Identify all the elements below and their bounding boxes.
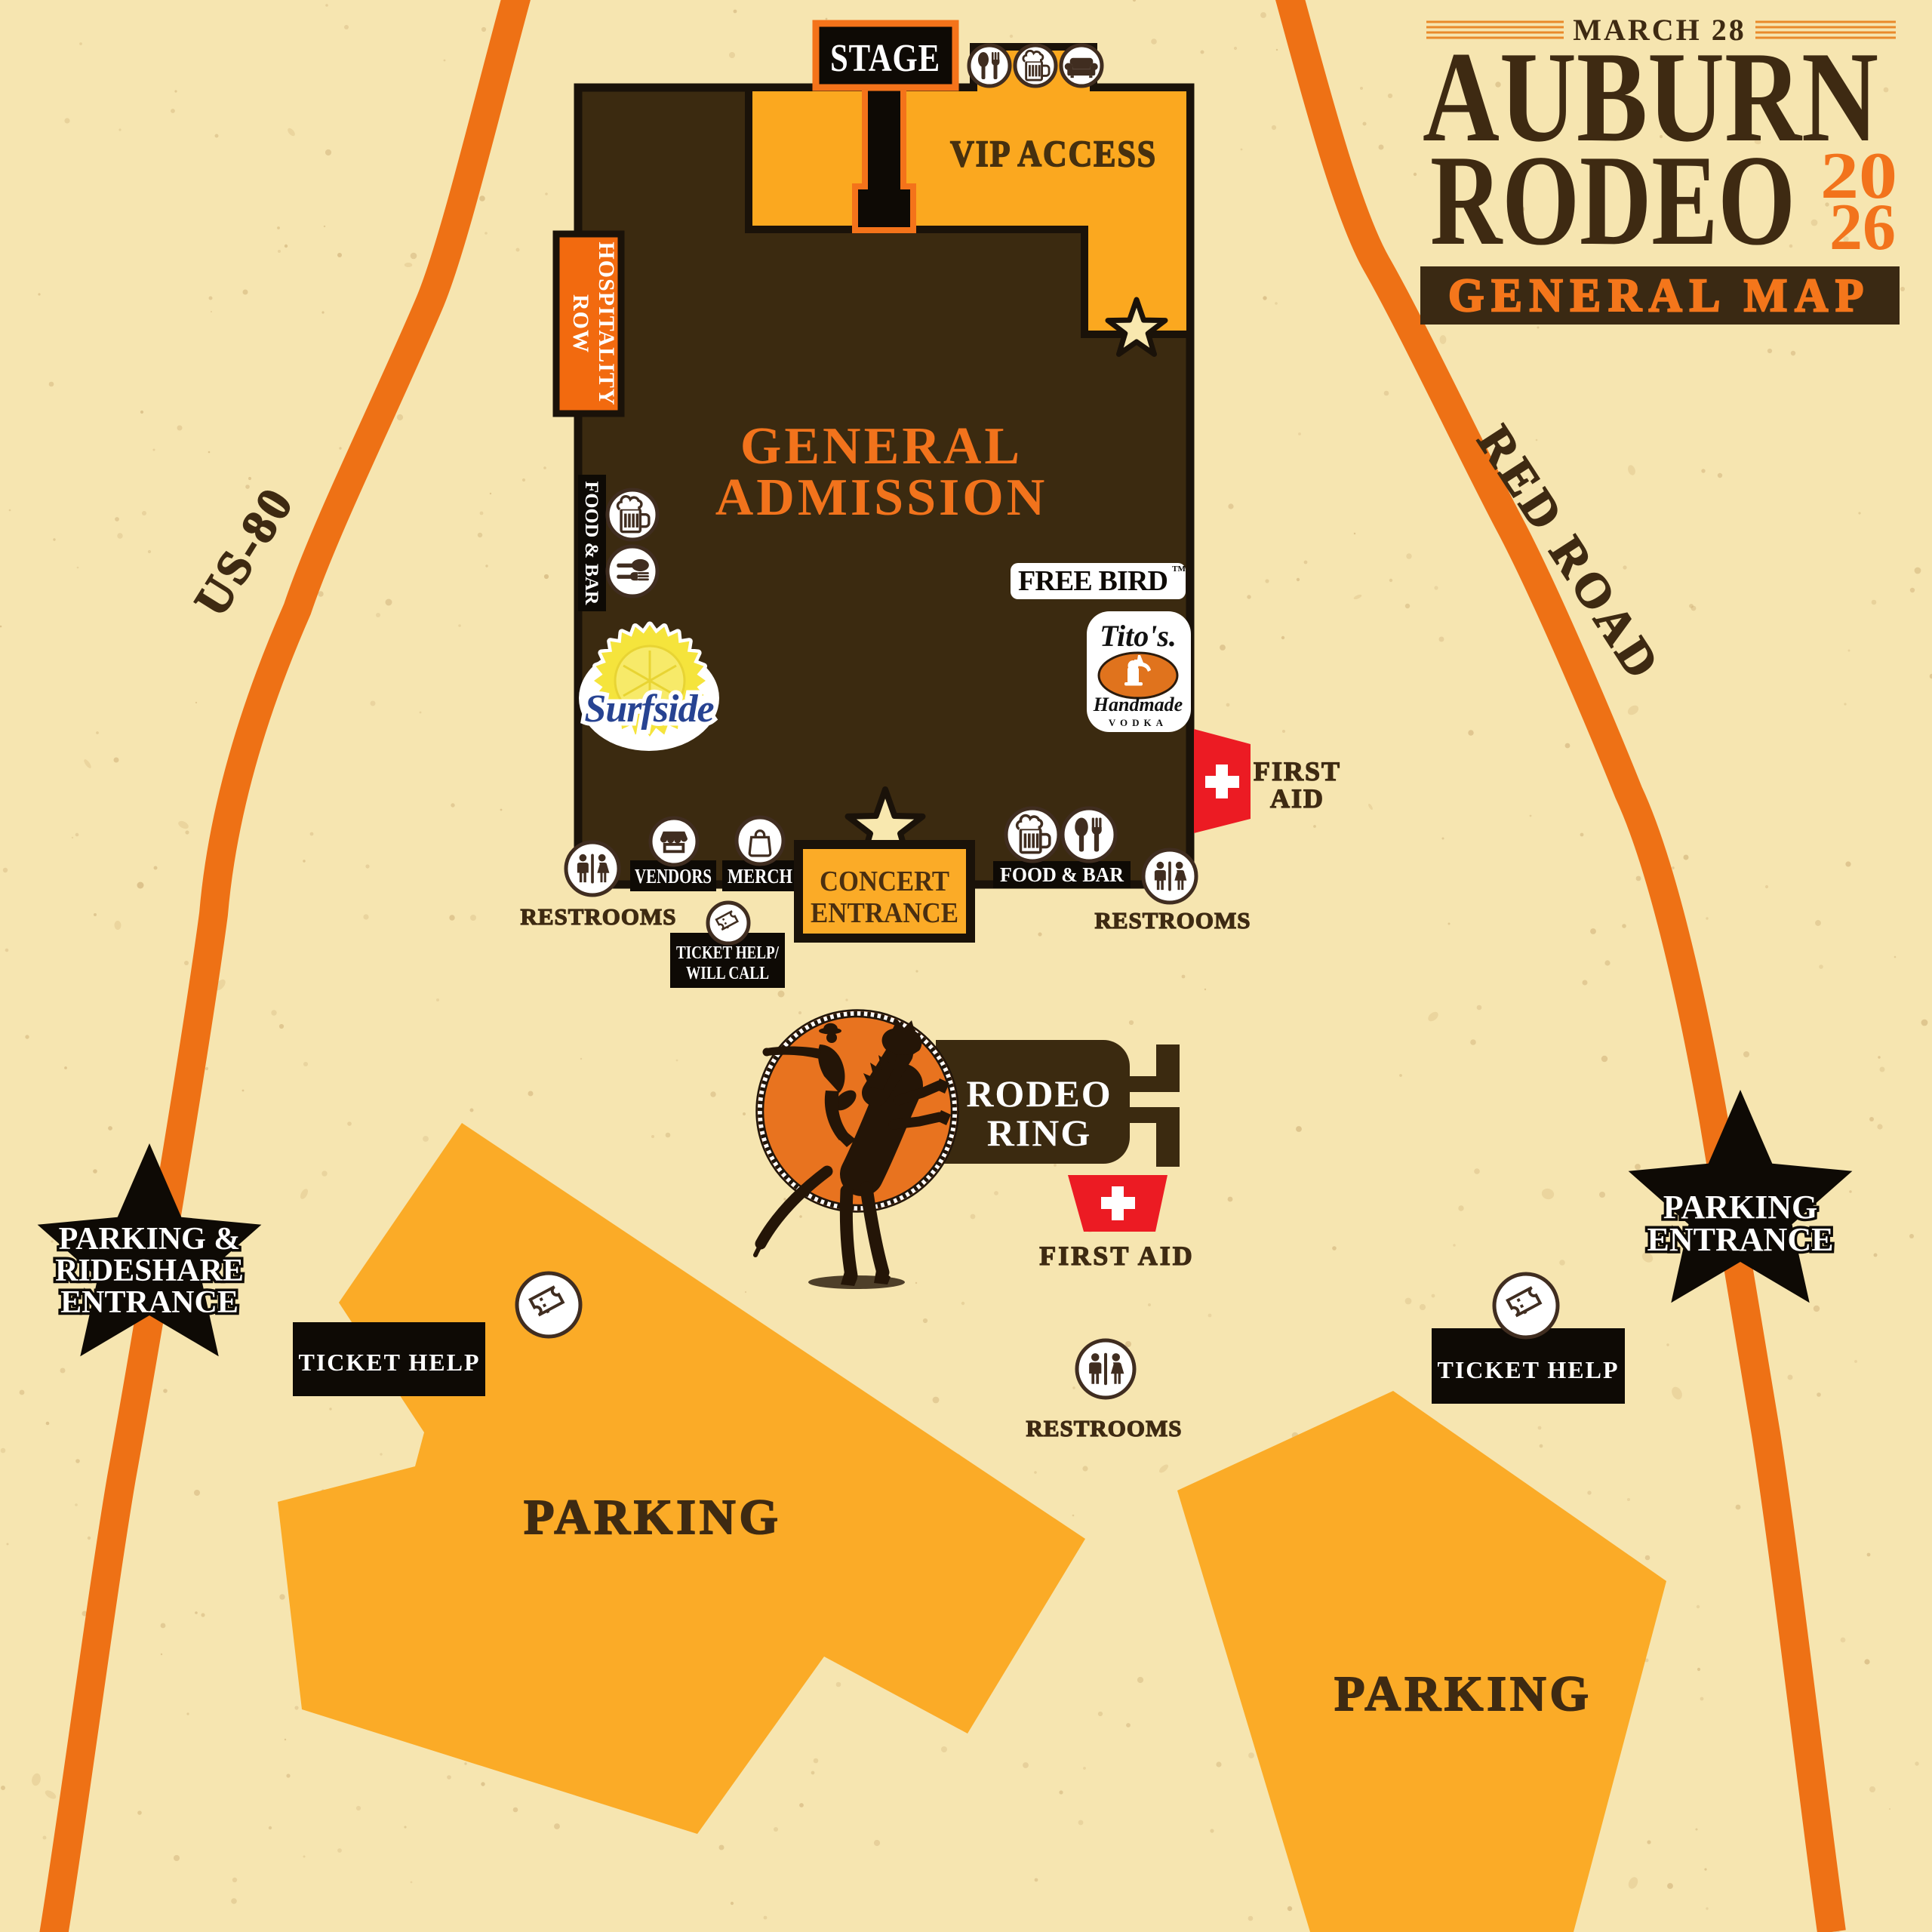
svg-text:Handmade: Handmade bbox=[1093, 694, 1183, 715]
svg-text:TICKET HELP: TICKET HELP bbox=[1437, 1356, 1619, 1383]
svg-text:WILL CALL: WILL CALL bbox=[686, 964, 769, 983]
svg-text:ENTRANCE: ENTRANCE bbox=[811, 897, 958, 929]
svg-text:GENERAL MAP: GENERAL MAP bbox=[1448, 270, 1871, 321]
svg-text:AID: AID bbox=[1270, 783, 1324, 814]
svg-text:RING: RING bbox=[987, 1112, 1092, 1154]
svg-text:ENTRANCE: ENTRANCE bbox=[1647, 1221, 1834, 1258]
svg-text:TICKET HELP: TICKET HELP bbox=[298, 1349, 480, 1376]
svg-text:PARKING &: PARKING & bbox=[59, 1222, 241, 1257]
svg-text:CONCERT: CONCERT bbox=[820, 866, 949, 897]
svg-text:GENERAL: GENERAL bbox=[740, 417, 1023, 475]
svg-text:ENTRANCE: ENTRANCE bbox=[60, 1285, 238, 1320]
svg-text:FOOD & BAR: FOOD & BAR bbox=[1000, 863, 1124, 886]
svg-text:RIDESHARE: RIDESHARE bbox=[55, 1254, 244, 1288]
svg-text:VENDORS: VENDORS bbox=[635, 865, 712, 888]
svg-text:TM: TM bbox=[1172, 565, 1186, 574]
svg-text:STAGE: STAGE bbox=[830, 37, 940, 80]
svg-text:FREE BIRD: FREE BIRD bbox=[1018, 565, 1169, 597]
svg-text:PARKING: PARKING bbox=[1663, 1189, 1818, 1226]
svg-text:TICKET HELP/: TICKET HELP/ bbox=[676, 943, 779, 963]
svg-text:FIRST AID: FIRST AID bbox=[1039, 1241, 1194, 1271]
svg-text:PARKING: PARKING bbox=[1334, 1666, 1592, 1721]
svg-text:RESTROOMS: RESTROOMS bbox=[1026, 1415, 1182, 1441]
svg-text:Surfside: Surfside bbox=[584, 688, 713, 731]
svg-text:ADMISSION: ADMISSION bbox=[715, 469, 1048, 527]
svg-text:VIP ACCESS: VIP ACCESS bbox=[950, 132, 1157, 174]
svg-text:FOOD & BAR: FOOD & BAR bbox=[581, 481, 601, 606]
svg-text:RODEO: RODEO bbox=[1430, 129, 1795, 272]
svg-text:RESTROOMS: RESTROOMS bbox=[520, 903, 676, 930]
svg-text:RESTROOMS: RESTROOMS bbox=[1094, 907, 1251, 934]
svg-text:PARKING: PARKING bbox=[524, 1490, 782, 1545]
svg-text:26: 26 bbox=[1829, 191, 1896, 264]
svg-text:ROW: ROW bbox=[568, 294, 593, 353]
svg-text:FIRST: FIRST bbox=[1254, 756, 1341, 786]
svg-text:VODKA: VODKA bbox=[1109, 717, 1168, 728]
svg-text:RODEO: RODEO bbox=[966, 1072, 1112, 1115]
svg-text:MERCH: MERCH bbox=[728, 865, 792, 888]
svg-text:HOSPITALITY: HOSPITALITY bbox=[594, 241, 619, 405]
svg-text:Tito's.: Tito's. bbox=[1100, 619, 1177, 653]
